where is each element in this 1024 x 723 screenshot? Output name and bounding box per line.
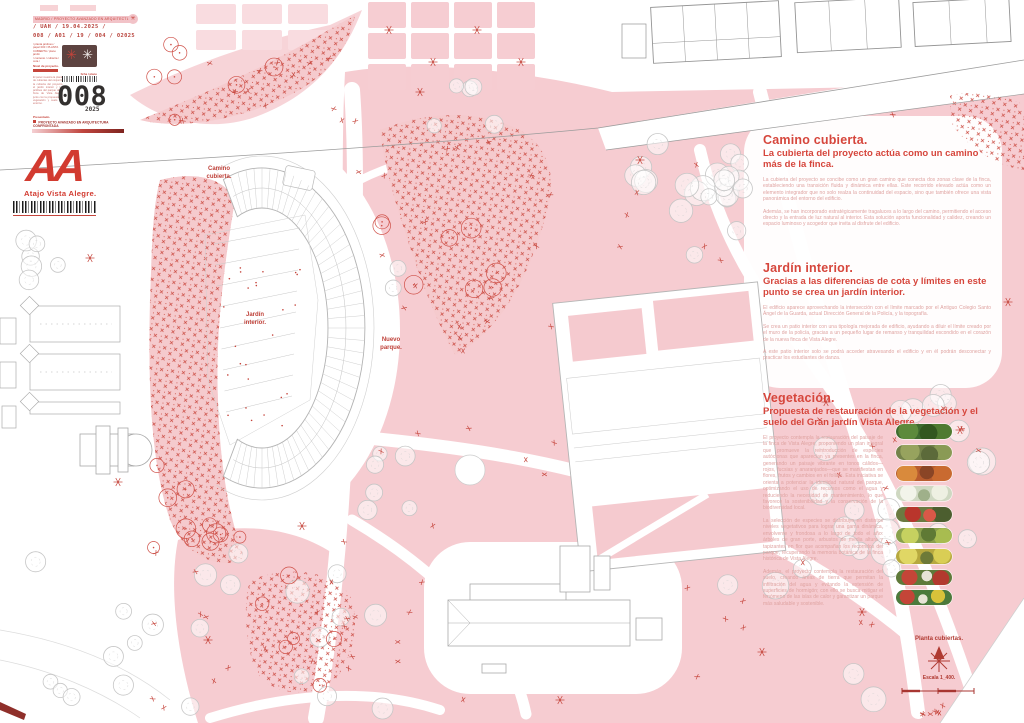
panel-jardin-interior: Jardín interior. Gracias a las diferenci… <box>763 262 991 368</box>
panel-title: Jardín interior. <box>763 262 991 275</box>
paragraph: La cubierta del proyecto se concibe como… <box>763 177 991 203</box>
level-bar <box>33 69 58 72</box>
presented-label: Presentado. <box>33 115 50 119</box>
asterisk-icon: ✳ <box>128 14 138 24</box>
panel-subtitle: La cubierta del proyecto actúa como un c… <box>763 149 991 170</box>
vegetation-photo <box>896 507 952 522</box>
sheet-number: 008 <box>57 81 107 112</box>
vegetation-photo <box>896 486 952 501</box>
gradient-bar <box>32 129 124 133</box>
paragraph: El edificio aparece aprovechando la inte… <box>763 305 991 318</box>
scale-label: Escala 1_400. <box>880 675 998 681</box>
paragraph: Además, se han incorporado estratégicame… <box>763 209 991 228</box>
vegetation-photo-strip <box>896 424 954 611</box>
title-tab <box>40 5 58 11</box>
spec-lines: / planta jardines / papel 000 / PLANTA C… <box>33 43 59 63</box>
vegetation-photo <box>896 424 952 439</box>
vegetation-photo <box>896 549 952 564</box>
vegetation-photo <box>896 466 952 481</box>
scale-bar <box>900 687 978 695</box>
paragraph: A este patio interior solo se podrá acce… <box>763 349 991 362</box>
panel-body: El proyecto contempla la restauración de… <box>763 435 883 607</box>
project-name: Atajo Vista Alegre. <box>24 189 96 198</box>
panel-subtitle: Propuesta de restauración de la vegetaci… <box>763 407 991 428</box>
paragraph: Además, el proyecto contempla la restaur… <box>763 569 883 607</box>
studio-logo: AA <box>24 144 82 188</box>
asterisk-icon: ✳ <box>66 48 77 62</box>
emblem-square: ✳ ✳ <box>62 45 97 67</box>
panel-body: El edificio aparece aprovechando la inte… <box>763 305 991 362</box>
panel-subtitle: Gracias a las diferencias de cota y lími… <box>763 277 991 298</box>
sheet-code-line: 008 / A01 / 19 / 004 / 02025 <box>33 33 135 39</box>
north-arrow-icon <box>922 644 956 674</box>
church-footprint <box>80 426 152 474</box>
vegetation-photo <box>896 590 952 605</box>
panel-camino-cubierta: Camino cubierta. La cubierta del proyect… <box>763 134 991 234</box>
map-notes: Planta cubiertas. Escala 1_400. <box>880 636 998 695</box>
header-strip: MADRID / PROYECTO AVANZADO EN ARQUITECTU… <box>33 16 132 23</box>
paragraph: El proyecto contempla la restauración de… <box>763 435 883 512</box>
title-block: MADRID / PROYECTO AVANZADO EN ARQUITECTU… <box>0 0 160 250</box>
mini-labels: ficha / plano <box>62 72 97 76</box>
paragraph: La selección de especies se distribuye e… <box>763 518 883 563</box>
vegetation-photo <box>896 445 952 460</box>
course-banner: PROYECTO AVANZADO EN ARQUITECTURA CONFRO… <box>33 120 133 128</box>
title-tab <box>70 5 96 11</box>
paragraph: Se crea un patio interior con una tipolo… <box>763 324 991 343</box>
plan-title: Planta cubiertas. <box>880 636 998 642</box>
panel-vegetacion: Vegetación. Propuesta de restauración de… <box>763 392 991 613</box>
vegetation-photo <box>896 570 952 585</box>
panel-body: La cubierta del proyecto se concibe como… <box>763 177 991 228</box>
asterisk-icon: ✳ <box>82 48 93 62</box>
barcode-underline <box>13 215 96 216</box>
presentation-board: MADRID / PROYECTO AVANZADO EN ARQUITECTU… <box>0 0 1024 723</box>
plan-label-camino-cubierta: Camino cubierta. <box>193 166 245 181</box>
panel-title: Vegetación. <box>763 392 991 405</box>
plan-label-jardin-interior: Jardín interior. <box>232 312 278 327</box>
plan-label-nuevo-parque: Nuevo parque. <box>368 337 414 352</box>
vegetation-photo <box>896 528 952 543</box>
panel-title: Camino cubierta. <box>763 134 991 147</box>
level-label: Nivel de proyecto. <box>33 64 59 68</box>
police-complex <box>553 282 786 572</box>
corner-mark <box>0 702 26 720</box>
date-line: / UAH / 19.04.2025 / <box>33 24 106 30</box>
barcode <box>13 201 96 213</box>
sheet-year: 2025 <box>85 106 99 113</box>
